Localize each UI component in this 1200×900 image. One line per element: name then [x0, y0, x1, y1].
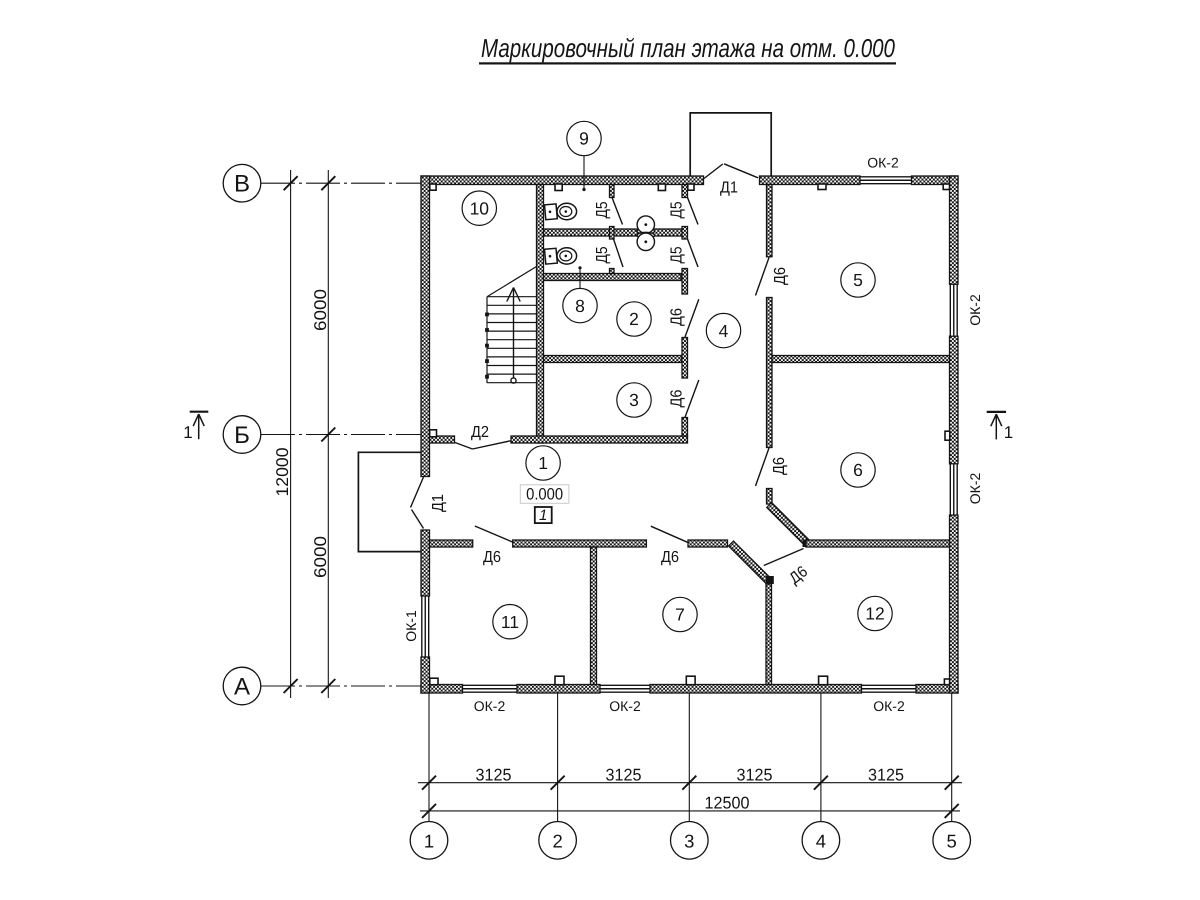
svg-text:В: В — [234, 171, 250, 198]
svg-text:А: А — [234, 673, 250, 700]
svg-text:12: 12 — [865, 604, 884, 624]
svg-text:ОК-2: ОК-2 — [474, 698, 506, 714]
svg-text:Д2: Д2 — [471, 424, 489, 441]
svg-text:Д6: Д6 — [786, 563, 811, 588]
svg-text:9: 9 — [579, 129, 589, 149]
svg-text:Д5: Д5 — [669, 246, 686, 263]
svg-text:12000: 12000 — [273, 448, 292, 497]
svg-text:5: 5 — [853, 270, 863, 290]
svg-text:ОК-2: ОК-2 — [867, 155, 899, 171]
svg-text:Д5: Д5 — [669, 201, 686, 218]
svg-text:1: 1 — [539, 507, 547, 524]
svg-text:Д5: Д5 — [594, 201, 611, 218]
svg-text:Д6: Д6 — [772, 267, 789, 285]
svg-text:4: 4 — [719, 321, 729, 341]
svg-text:Д6: Д6 — [669, 389, 686, 407]
svg-text:7: 7 — [675, 605, 685, 625]
svg-text:6000: 6000 — [311, 289, 330, 331]
svg-text:2: 2 — [552, 830, 562, 851]
svg-text:ОК-2: ОК-2 — [967, 294, 983, 326]
svg-text:3125: 3125 — [868, 766, 904, 785]
svg-text:0.000: 0.000 — [526, 486, 563, 504]
svg-text:1: 1 — [538, 453, 548, 473]
svg-text:ОК-2: ОК-2 — [873, 698, 905, 714]
svg-text:5: 5 — [947, 830, 957, 851]
svg-text:1: 1 — [1004, 423, 1013, 442]
svg-text:Маркировочный план этажа на от: Маркировочный план этажа на отм. 0.000 — [481, 33, 895, 63]
svg-text:ОК-2: ОК-2 — [609, 698, 641, 714]
svg-text:Д5: Д5 — [594, 246, 611, 263]
svg-text:11: 11 — [501, 612, 519, 632]
svg-text:8: 8 — [575, 296, 585, 316]
svg-text:6000: 6000 — [311, 536, 330, 578]
svg-text:3125: 3125 — [476, 766, 512, 785]
svg-text:ОК-2: ОК-2 — [967, 473, 983, 505]
svg-text:6: 6 — [853, 460, 863, 480]
svg-text:3125: 3125 — [737, 766, 773, 785]
svg-text:Д6: Д6 — [771, 457, 788, 475]
svg-text:Д6: Д6 — [483, 549, 501, 566]
svg-text:1: 1 — [424, 830, 434, 851]
svg-text:Д1: Д1 — [430, 494, 447, 512]
svg-text:3: 3 — [684, 830, 694, 851]
svg-text:2: 2 — [629, 309, 639, 329]
svg-text:Б: Б — [234, 422, 250, 449]
svg-text:1: 1 — [183, 423, 192, 442]
svg-text:3125: 3125 — [606, 766, 642, 785]
svg-text:Д6: Д6 — [669, 308, 686, 326]
svg-text:12500: 12500 — [705, 794, 750, 813]
svg-text:4: 4 — [816, 830, 826, 851]
svg-text:10: 10 — [470, 198, 490, 218]
svg-text:Д1: Д1 — [720, 180, 738, 197]
svg-text:Д6: Д6 — [661, 549, 679, 566]
svg-text:ОК-1: ОК-1 — [403, 610, 419, 642]
svg-text:3: 3 — [629, 390, 639, 410]
